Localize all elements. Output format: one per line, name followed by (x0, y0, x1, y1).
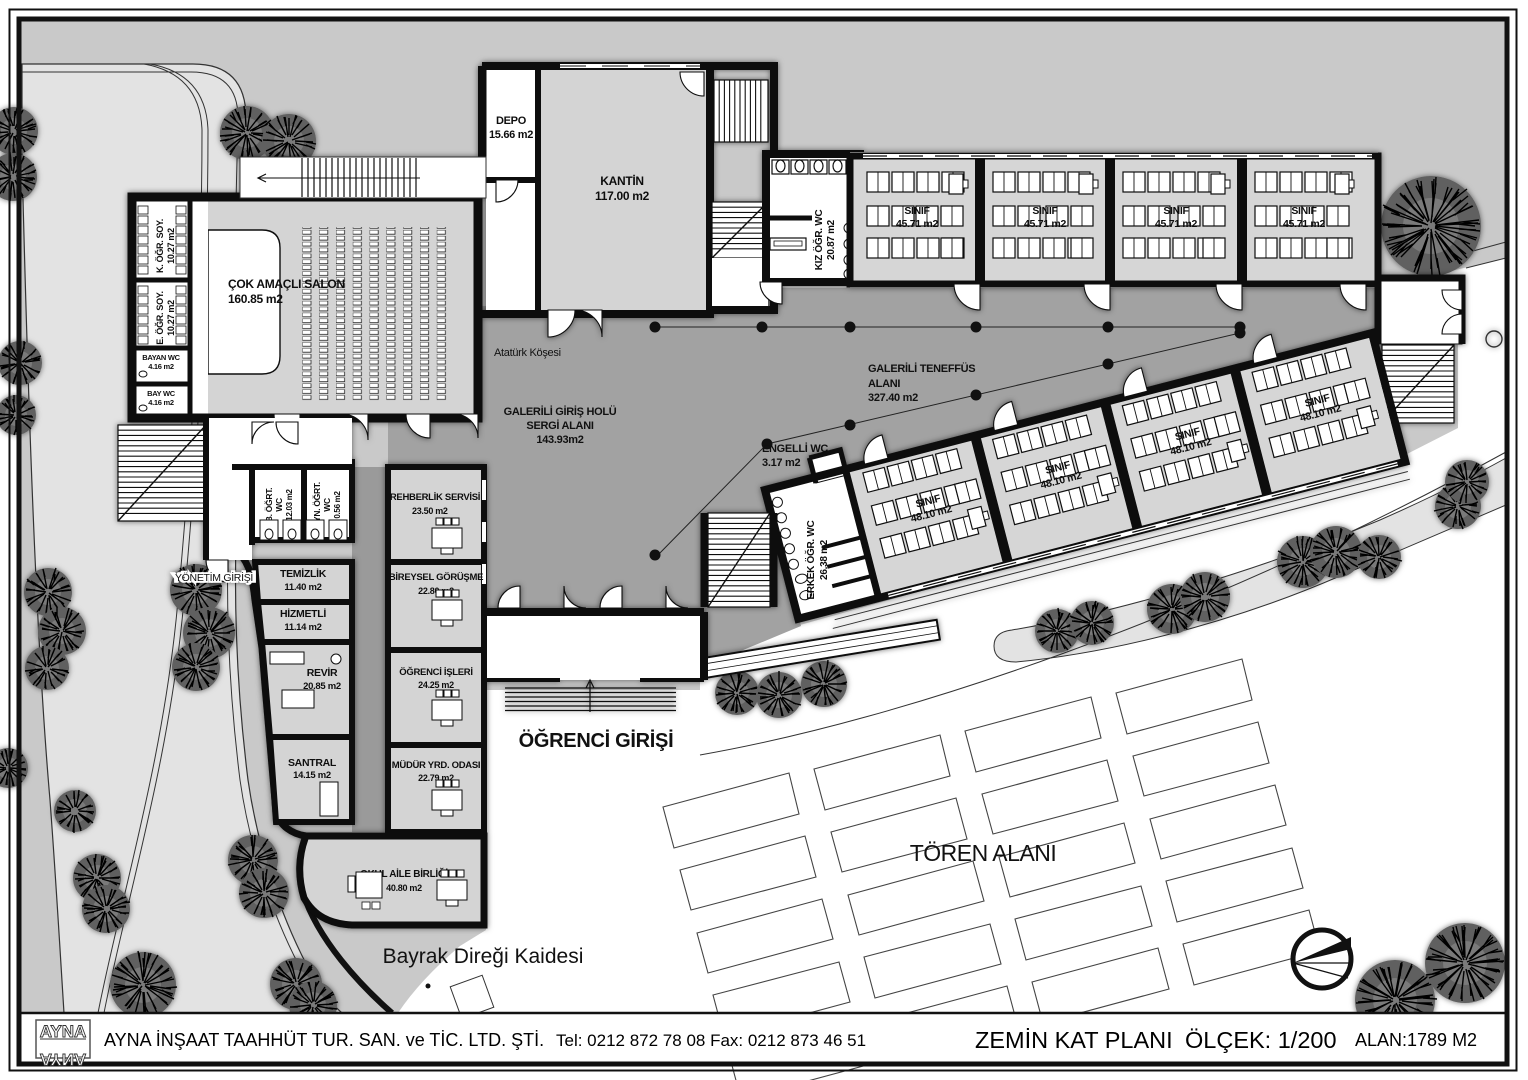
svg-text:3.17 m2: 3.17 m2 (762, 457, 800, 469)
svg-text:0.56 m2: 0.56 m2 (333, 491, 342, 519)
svg-text:26.38 m2: 26.38 m2 (819, 539, 830, 580)
svg-text:11.40 m2: 11.40 m2 (284, 582, 321, 593)
svg-text:MÜDÜR YRD. ODASI: MÜDÜR YRD. ODASI (392, 760, 480, 771)
svg-text:160.85 m2: 160.85 m2 (228, 292, 283, 306)
svg-text:SERGİ ALANI: SERGİ ALANI (526, 419, 593, 432)
svg-text:ÖLÇEK: 1/200: ÖLÇEK: 1/200 (1185, 1027, 1337, 1053)
svg-text:143.93m2: 143.93m2 (536, 434, 583, 446)
svg-text:SINIF: SINIF (904, 205, 930, 217)
svg-text:REHBERLİK SERVİSİ: REHBERLİK SERVİSİ (390, 492, 480, 503)
svg-text:11.14 m2: 11.14 m2 (284, 622, 321, 633)
svg-text:E. ÖĞR. SOY.: E. ÖĞR. SOY. (154, 291, 165, 344)
svg-text:ÖĞRENCİ İŞLERİ: ÖĞRENCİ İŞLERİ (399, 666, 472, 678)
svg-text:SANTRAL: SANTRAL (288, 757, 337, 769)
svg-text:GALERİLİ GİRİŞ HOLÜ: GALERİLİ GİRİŞ HOLÜ (504, 405, 617, 418)
svg-text:ALANI: ALANI (868, 378, 900, 390)
svg-text:4.16 m2: 4.16 m2 (148, 362, 174, 371)
svg-text:45.71 m2: 45.71 m2 (1024, 218, 1066, 230)
svg-text:WC: WC (274, 498, 284, 512)
svg-text:KIZ ÖĞR. WC: KIZ ÖĞR. WC (812, 210, 825, 271)
svg-text:REVİR: REVİR (307, 666, 338, 679)
svg-text:327.40 m2: 327.40 m2 (868, 392, 918, 404)
svg-text:15.66 m2: 15.66 m2 (489, 129, 533, 141)
svg-text:10.27 m2: 10.27 m2 (166, 300, 176, 336)
svg-text:14.15 m2: 14.15 m2 (293, 770, 331, 781)
svg-text:BAY WC: BAY WC (147, 389, 176, 398)
svg-text:TÖREN ALANI: TÖREN ALANI (910, 840, 1057, 866)
svg-text:Tel: 0212 872 78 08 Fax: 0212: Tel: 0212 872 78 08 Fax: 0212 873 46 51 (556, 1031, 866, 1050)
svg-text:ÇOK AMAÇLI SALON: ÇOK AMAÇLI SALON (228, 277, 345, 291)
svg-text:40.80 m2: 40.80 m2 (386, 883, 422, 893)
svg-text:45.71 m2: 45.71 m2 (1155, 218, 1197, 230)
svg-text:AYNA: AYNA (40, 1022, 87, 1041)
svg-text:12.03 m2: 12.03 m2 (285, 488, 294, 520)
svg-text:WC: WC (322, 498, 332, 512)
svg-text:10.27 m2: 10.27 m2 (166, 228, 176, 264)
svg-text:SINIF: SINIF (1291, 205, 1317, 217)
svg-text:Bayrak Direği Kaidesi: Bayrak Direği Kaidesi (383, 945, 584, 968)
svg-text:DEPO: DEPO (496, 115, 527, 127)
svg-text:ÖĞRENCİ GİRİŞİ: ÖĞRENCİ GİRİŞİ (519, 728, 674, 752)
svg-text:YÖNETİM GİRİŞİ: YÖNETİM GİRİŞİ (175, 571, 253, 584)
svg-text:45.71 m2: 45.71 m2 (896, 218, 938, 230)
svg-text:SINIF: SINIF (1163, 205, 1189, 217)
svg-text:TEMİZLİK: TEMİZLİK (280, 567, 327, 580)
svg-text:20.87 m2: 20.87 m2 (826, 219, 837, 260)
svg-text:HİZMETLİ: HİZMETLİ (280, 607, 326, 620)
svg-text:23.50 m2: 23.50 m2 (412, 506, 448, 516)
svg-text:AYNA: AYNA (40, 1050, 87, 1069)
svg-text:GALERİLİ TENEFFÜS: GALERİLİ TENEFFÜS (868, 362, 975, 375)
svg-text:4.16 m2: 4.16 m2 (148, 398, 174, 407)
svg-text:24.25 m2: 24.25 m2 (418, 680, 454, 690)
svg-text:ALAN:1789 M2: ALAN:1789 M2 (1355, 1030, 1477, 1050)
svg-text:B. ÖĞRT.: B. ÖĞRT. (263, 488, 274, 522)
svg-text:45.71 m2: 45.71 m2 (1283, 218, 1325, 230)
svg-text:Atatürk Köşesi: Atatürk Köşesi (494, 347, 561, 359)
svg-text:BAYAN WC: BAYAN WC (142, 353, 180, 362)
svg-text:SINIF: SINIF (1032, 205, 1058, 217)
svg-text:AYNA İNŞAAT TAAHHÜT TUR. SAN.: AYNA İNŞAAT TAAHHÜT TUR. SAN. ve TİC. LT… (104, 1030, 544, 1050)
svg-text:BİREYSEL GÖRÜŞME: BİREYSEL GÖRÜŞME (389, 572, 483, 583)
svg-text:K. ÖĞR. SOY.: K. ÖĞR. SOY. (154, 219, 165, 273)
svg-text:ERKEK ÖĞR. WC: ERKEK ÖĞR. WC (804, 520, 817, 599)
svg-text:117.00 m2: 117.00 m2 (595, 189, 650, 203)
svg-text:KANTİN: KANTİN (600, 173, 644, 188)
svg-text:ZEMİN KAT PLANI: ZEMİN KAT PLANI (975, 1027, 1173, 1053)
